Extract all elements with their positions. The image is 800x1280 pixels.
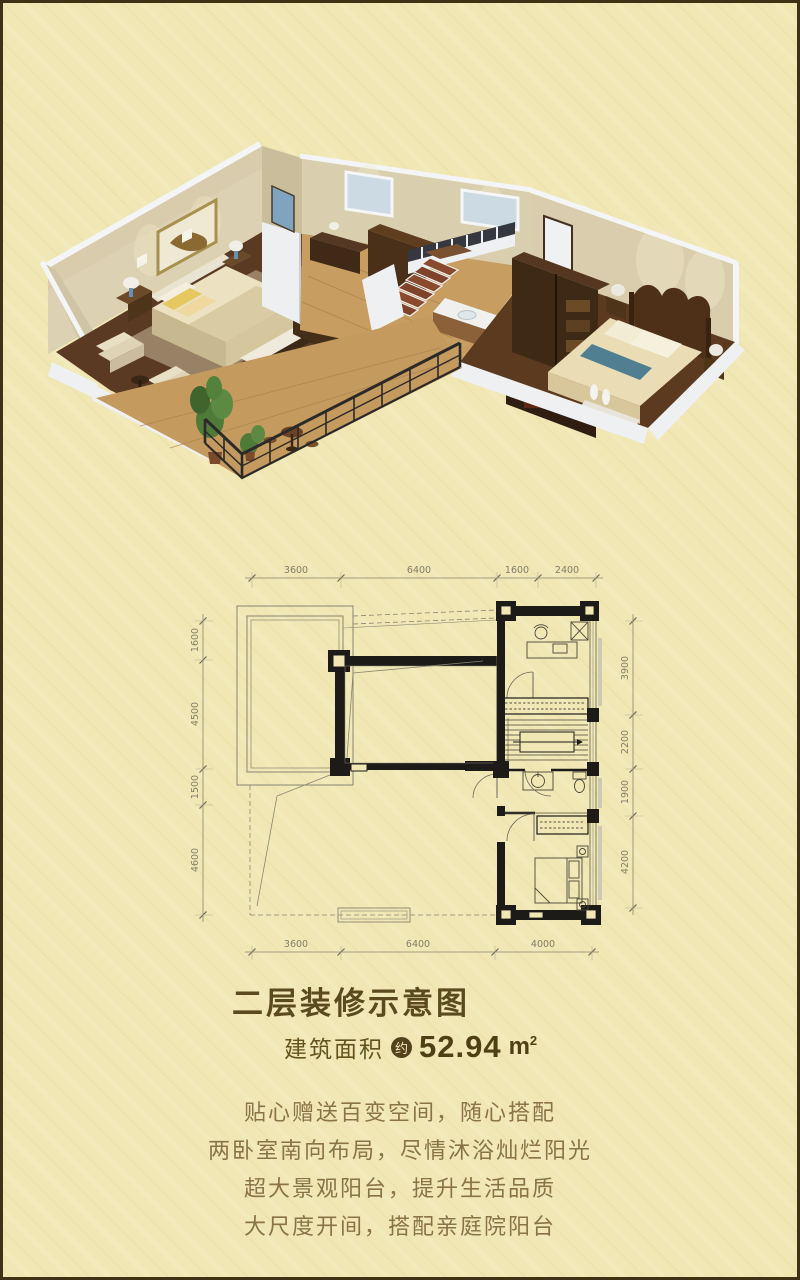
pillow-plan [569, 861, 579, 878]
dimension-bottom: 3600 6400 4000 [245, 939, 599, 960]
area-value: 52.94 [419, 1029, 502, 1065]
area-unit: m2 [509, 1033, 538, 1061]
dimension-label: 1500 [190, 775, 201, 799]
description-line: 两卧室南向布局，尽情沐浴灿烂阳光 [0, 1132, 800, 1170]
dimension-label: 6400 [407, 565, 431, 576]
dimension-left: 1600 4500 1500 4600 [190, 614, 213, 922]
window [346, 172, 392, 216]
void-room [328, 650, 500, 798]
wardrobe-plan [502, 698, 588, 714]
door-arc [507, 814, 534, 841]
description-block: 贴心赠送百变空间，随心搭配 两卧室南向布局，尽情沐浴灿烂阳光 超大景观阳台，提升… [0, 1094, 800, 1246]
dimension-label: 4500 [190, 702, 201, 726]
dimension-label: 1600 [190, 628, 201, 652]
description-line: 超大景观阳台，提升生活品质 [0, 1170, 800, 1208]
right-wing-walls [493, 601, 602, 925]
dimension-label: 4200 [620, 850, 631, 874]
dimension-label: 3900 [620, 656, 631, 680]
floor-plan: 3600 6400 1600 2400 3600 6400 4000 1600 [185, 558, 655, 970]
description-line: 大尺度开间，搭配亲庭院阳台 [0, 1208, 800, 1246]
dimension-label: 1600 [505, 565, 529, 576]
toilet [575, 780, 585, 793]
dimension-label: 2200 [620, 730, 631, 754]
page-title: 二层装修示意图 [232, 978, 470, 1023]
description-line: 贴心赠送百变空间，随心搭配 [0, 1094, 800, 1132]
monitor [553, 644, 567, 653]
vase [590, 384, 598, 400]
dimension-label: 4600 [190, 848, 201, 872]
render-3d-cutaway [0, 110, 800, 530]
pillow-plan [569, 881, 579, 898]
study-room [507, 622, 588, 698]
staircase-plan [505, 718, 588, 763]
dimension-label: 3600 [284, 939, 308, 950]
dimension-label: 6400 [406, 939, 430, 950]
door-arc [507, 672, 533, 698]
dimension-top: 3600 6400 1600 2400 [245, 565, 603, 588]
dimension-right: 3900 2200 1900 4200 [620, 614, 643, 915]
bedroom-plan [505, 813, 588, 910]
approx-badge: 约 [391, 1037, 412, 1058]
dimension-label: 2400 [555, 565, 579, 576]
bathroom [505, 770, 588, 796]
dimension-label: 3600 [284, 565, 308, 576]
area-label: 建筑面积 [284, 1030, 384, 1064]
nightstand-plan [577, 846, 588, 857]
vase [602, 389, 610, 405]
dimension-label: 4000 [531, 939, 555, 950]
wardrobe-plan [537, 816, 588, 834]
desk-chair [535, 627, 547, 639]
area-line: 建筑面积 约 52.94 m2 [284, 1030, 537, 1064]
toilet-tank [573, 772, 586, 779]
bed-plan [535, 858, 582, 903]
desk [527, 642, 577, 658]
dimension-label: 1900 [620, 780, 631, 804]
